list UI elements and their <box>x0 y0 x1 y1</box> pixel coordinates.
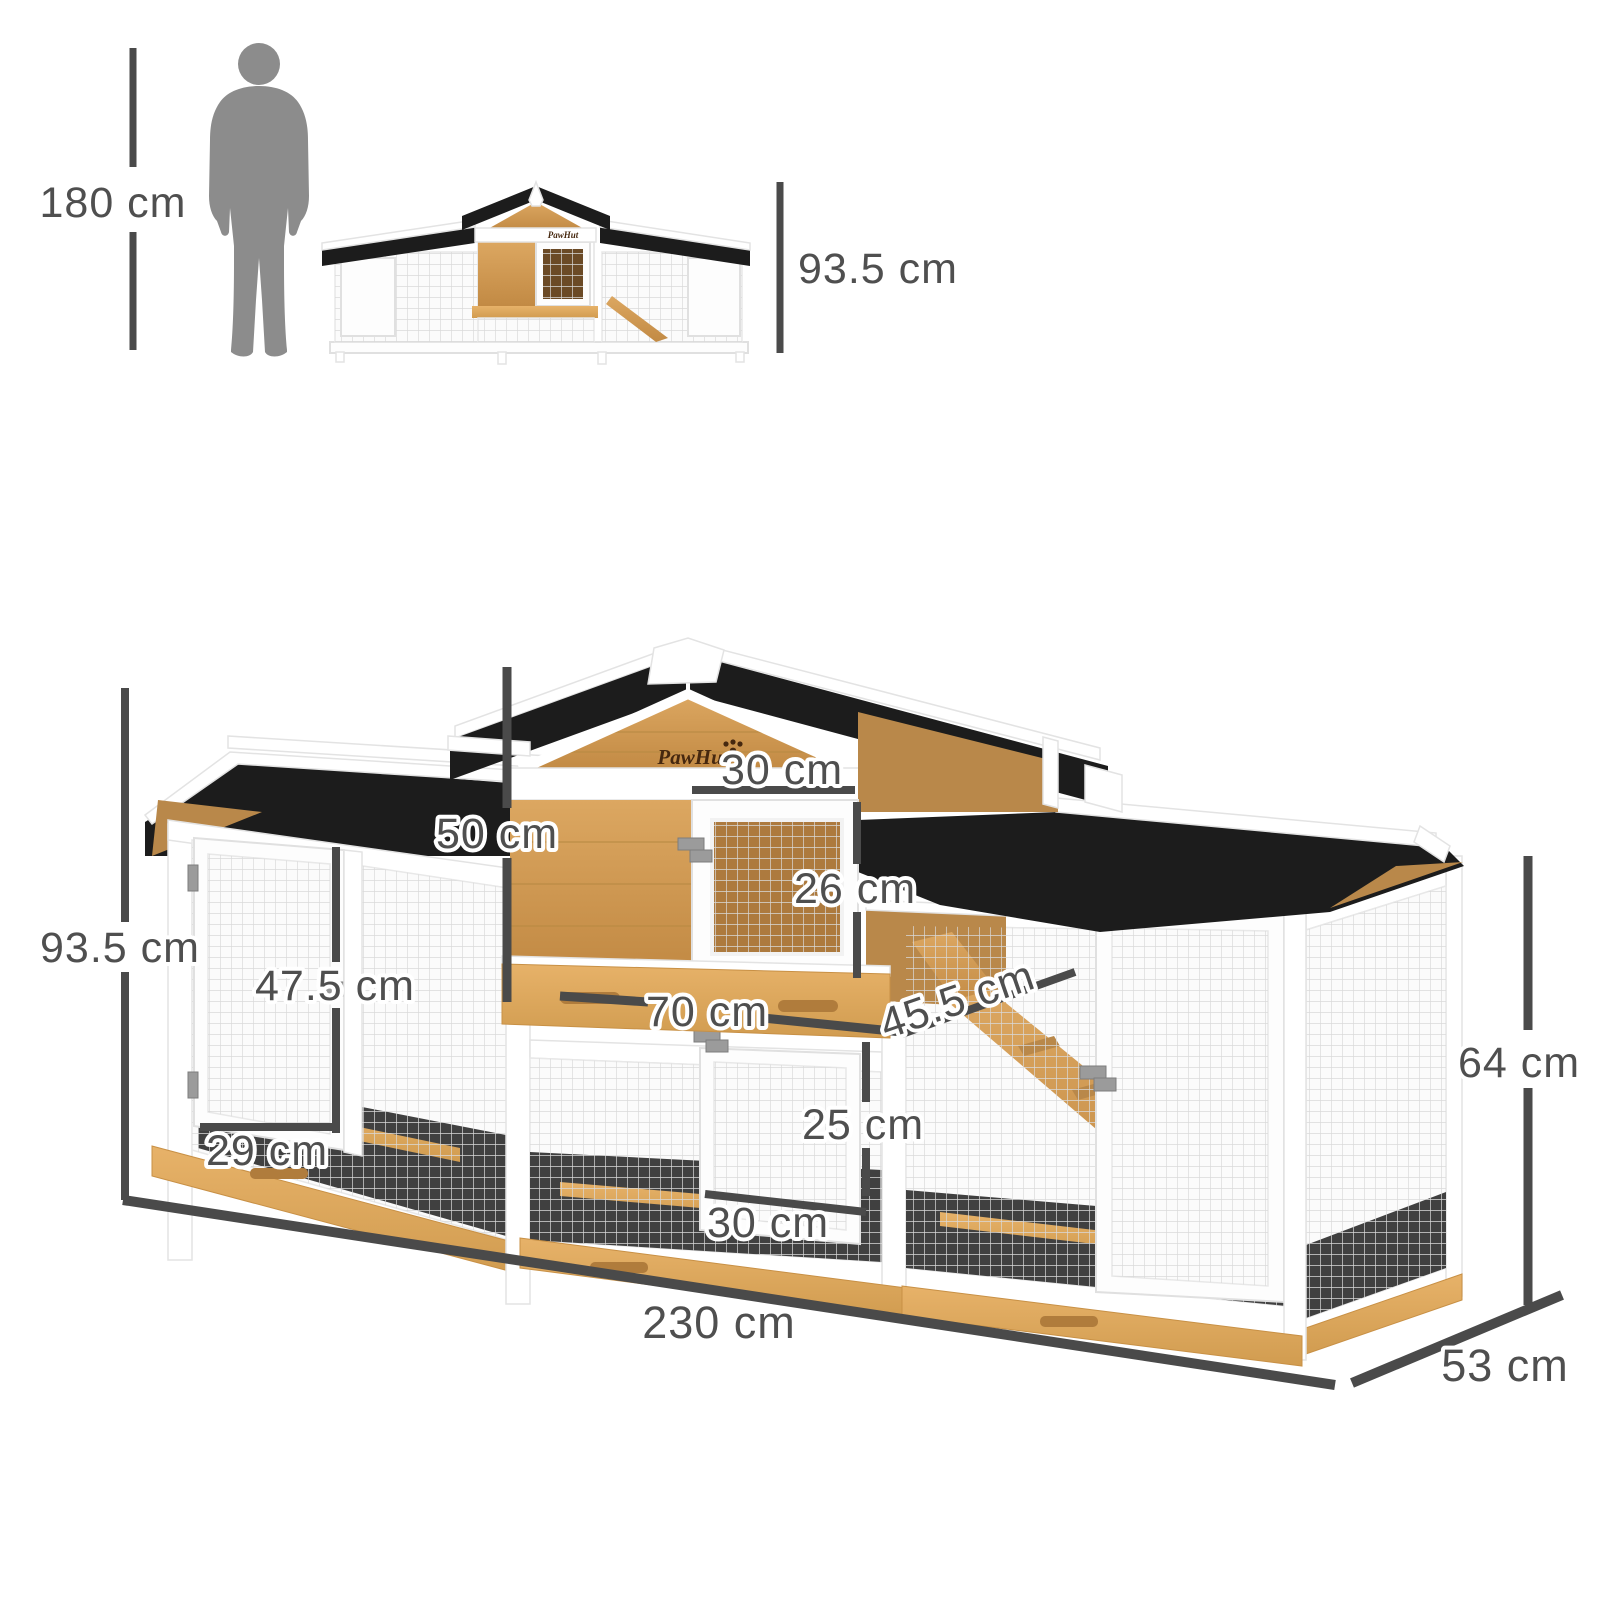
right-front-post <box>1284 908 1306 1360</box>
dim-overall-width-label: 230 cm <box>642 1297 796 1348</box>
dim-run-height-label: 64 cm <box>1458 1039 1580 1087</box>
silhouette-head <box>238 43 280 85</box>
thumb-mid-band <box>472 306 598 318</box>
dim-line-upper-hutch-width-left <box>560 996 648 1002</box>
thumb-leg <box>498 352 506 364</box>
center-post-right <box>882 1032 906 1318</box>
thumb-lower-run-mesh <box>478 318 594 342</box>
dim-upper-door-width-label: 30 cm <box>721 746 843 794</box>
house-side-corner-trim <box>1043 737 1058 808</box>
right-rail-handle <box>1040 1316 1098 1327</box>
center-lower-run <box>506 1020 906 1318</box>
diagram-canvas: 180 cm <box>0 0 1600 1600</box>
dim-overall-depth-label: 53 cm <box>1441 1340 1569 1391</box>
thumb-roof-cap <box>529 182 543 206</box>
dim-lower-door-width-label: 30 cm <box>707 1199 829 1247</box>
left-door-hinge-top <box>188 865 198 891</box>
dim-upper-hutch-width-label: 70 cm <box>646 988 768 1036</box>
thumbnail-hutch: PawHut <box>322 182 750 364</box>
right-side-mesh-grid <box>1306 886 1446 1318</box>
thumb-leg <box>336 352 344 362</box>
right-run-door-mesh-grid <box>1112 928 1268 1286</box>
thumb-leg <box>736 352 744 362</box>
brand-logo: PawHut <box>656 745 729 769</box>
thumb-height-label: 93.5 cm <box>798 245 958 293</box>
scale-reference-panel: 180 cm <box>39 43 957 364</box>
tray-handle-right <box>778 1000 838 1012</box>
human-silhouette <box>209 43 309 357</box>
thumb-leg <box>598 352 606 364</box>
dim-lower-door-height-label: 25 cm <box>802 1101 924 1149</box>
person-height-label: 180 cm <box>39 179 186 227</box>
product-dimension-diagram: 180 cm <box>0 0 1600 1600</box>
thumb-left-door <box>341 258 395 336</box>
left-door-hinge-bottom <box>188 1072 198 1098</box>
dim-left-door-width-label: 29 cm <box>206 1127 328 1175</box>
dim-upper-hutch-height-label: 50 cm <box>436 810 558 858</box>
right-wing <box>858 798 1464 1366</box>
thumb-house-wood-panel <box>478 242 536 306</box>
dim-overall-height-label: 93.5 cm <box>40 924 200 972</box>
house-roof-peak-cap <box>648 638 724 684</box>
dim-left-door-height-label: 47.5 cm <box>255 962 415 1010</box>
dim-upper-door-height-label: 26 cm <box>794 865 916 913</box>
silhouette-body <box>209 86 309 357</box>
thumb-house-window-mesh <box>543 249 583 299</box>
thumb-right-door <box>688 258 740 336</box>
thumb-brand-logo: PawHut <box>548 230 579 240</box>
thumb-base-rail <box>330 342 748 353</box>
